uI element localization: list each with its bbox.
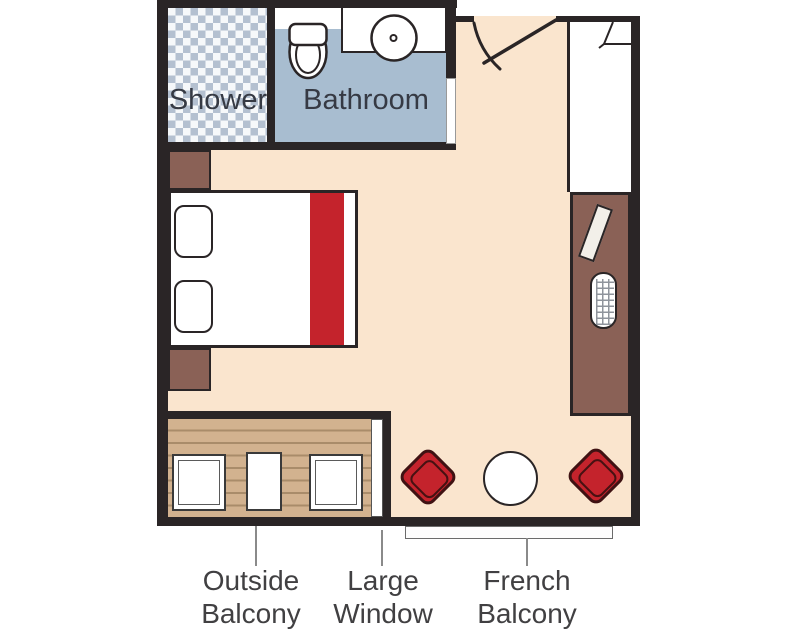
tv-icon	[578, 204, 613, 262]
outside-area	[456, 0, 640, 16]
bed-runner	[310, 193, 344, 345]
shower-area	[168, 8, 267, 142]
wall-right	[631, 16, 640, 526]
round-table	[483, 451, 538, 506]
bathroom-label: Bathroom	[286, 84, 446, 117]
leader-line-large-window	[381, 530, 383, 566]
toilet-alcove	[275, 8, 342, 29]
keypad-grid	[596, 279, 614, 325]
wall-closet-left	[567, 22, 570, 192]
balcony-chair	[309, 454, 363, 511]
nightstand-top	[168, 150, 211, 190]
pillow	[174, 280, 213, 333]
wall-entry-stub	[456, 16, 474, 22]
french-balcony-label-line1: French	[442, 564, 612, 597]
leader-line-french-balcony	[526, 538, 528, 566]
large-window	[371, 419, 383, 517]
wall-bathroom-bottom	[157, 142, 456, 150]
bed	[168, 190, 358, 348]
floor-plan-canvas: Shower Bathroom Outside Balcony Large Wi…	[0, 0, 800, 640]
wall-shower-bathroom-divider	[267, 8, 275, 150]
leader-line-outside-balcony	[255, 526, 257, 566]
nightstand-bottom	[168, 348, 211, 391]
bathroom-door-opening	[446, 78, 456, 144]
desk-counter	[570, 192, 631, 416]
french-balcony-label: French Balcony	[442, 564, 612, 630]
sink-counter	[341, 8, 447, 53]
balcony-chair	[172, 454, 226, 511]
balcony-table	[246, 452, 282, 511]
phone-keypad-icon	[590, 272, 617, 329]
wall-balcony-top	[157, 411, 391, 419]
wall-top-left	[157, 0, 457, 8]
pillow	[174, 205, 213, 258]
wall-bottom	[157, 517, 640, 526]
closet-area	[570, 22, 631, 192]
wall-left	[157, 0, 168, 526]
wall-window-side	[383, 411, 391, 526]
shower-label: Shower	[164, 84, 272, 117]
french-balcony-label-line2: Balcony	[442, 597, 612, 630]
french-balcony-strip	[405, 526, 613, 539]
